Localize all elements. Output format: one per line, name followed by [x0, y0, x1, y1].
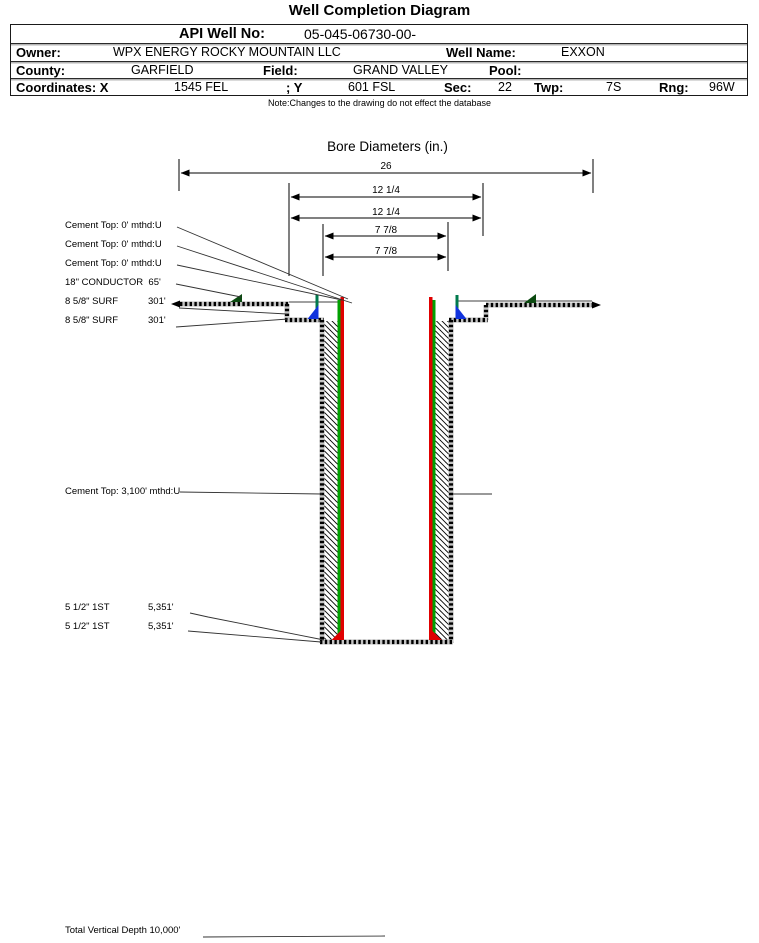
cement-stripe-right	[433, 300, 436, 640]
borehole-walls	[180, 304, 593, 643]
dimension-lines	[181, 173, 591, 257]
cement-hatch-right	[436, 321, 449, 640]
cement-top-marker-blue-left	[308, 305, 319, 319]
surface-arrow-left	[171, 301, 180, 308]
well-completion-page: Well Completion Diagram API Well No: 05-…	[0, 0, 759, 943]
production-casing-right	[429, 297, 433, 640]
cement-hatch-left	[325, 321, 338, 640]
cement-top-marker-blue-right	[456, 305, 467, 319]
surface-arrow-right	[592, 302, 601, 309]
production-casing-left	[341, 297, 345, 640]
cement-stripe-left	[338, 300, 341, 640]
cement-top-marker-green-right	[524, 294, 536, 303]
wellbore-diagram	[0, 0, 759, 943]
